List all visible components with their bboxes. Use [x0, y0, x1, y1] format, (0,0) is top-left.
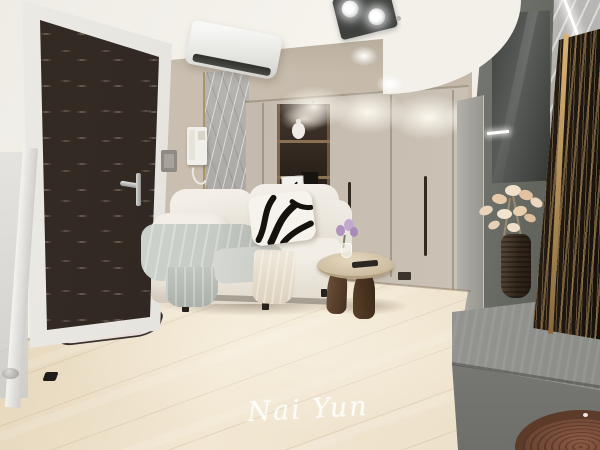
ceiling-sensor — [396, 16, 401, 21]
door-handle-plate — [136, 173, 141, 206]
glass-partition-foot — [2, 368, 19, 379]
living-room-photo: Nai Yun — [0, 0, 600, 450]
coffee-table-leg — [353, 273, 375, 319]
spotlight-lamp — [340, 0, 361, 19]
spotlight-lamp — [366, 6, 387, 27]
niche-shelf — [277, 140, 330, 143]
cream-throw — [252, 249, 297, 305]
stool-highlight — [583, 413, 588, 417]
wardrobe-handle — [424, 176, 427, 256]
intercom-handset — [187, 127, 207, 165]
branch-pattern — [247, 189, 317, 246]
bud-vase — [341, 243, 352, 258]
recessed-downlight — [350, 46, 378, 66]
recessed-downlight — [376, 74, 404, 94]
dried-flower-vase — [501, 234, 531, 298]
gray-pillar — [457, 95, 484, 317]
light-switch — [161, 150, 177, 172]
lilac-flower — [350, 227, 358, 237]
wall-socket — [398, 272, 411, 280]
throw-blanket-drape — [166, 267, 218, 307]
dried-bloom — [497, 209, 512, 219]
patterned-cushion — [247, 189, 317, 246]
